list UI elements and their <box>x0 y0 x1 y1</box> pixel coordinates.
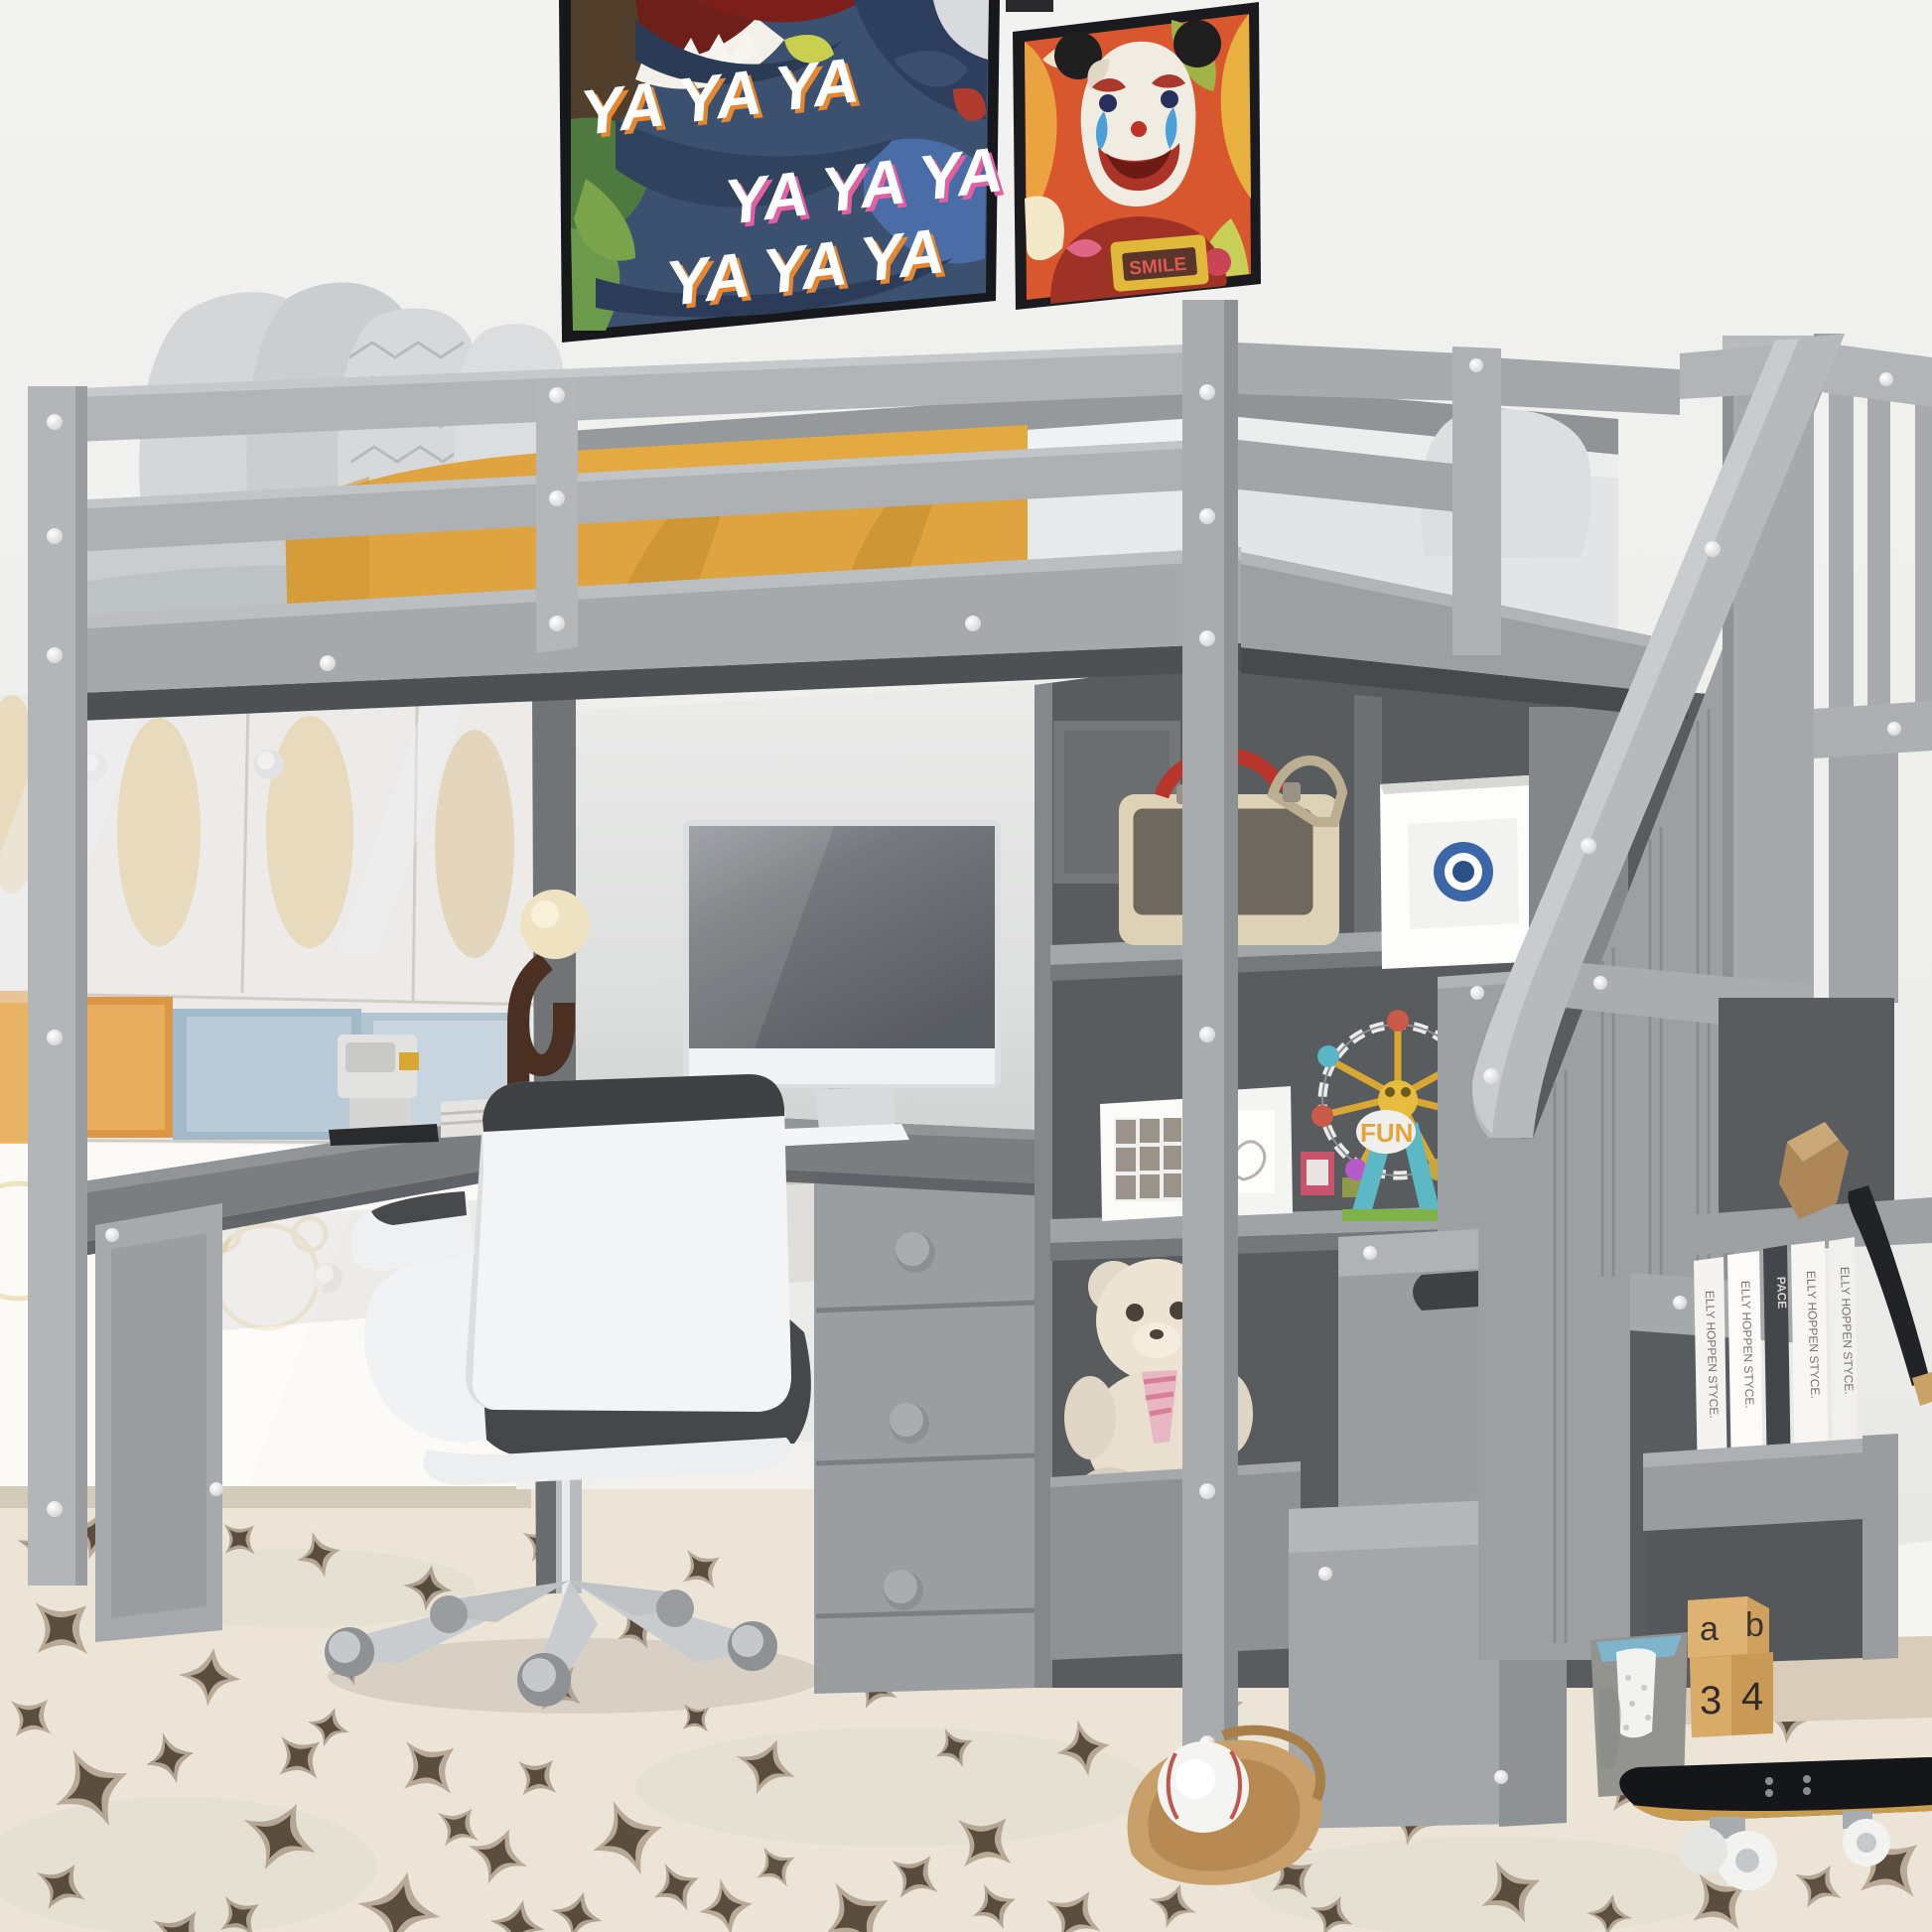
svg-text:3: 3 <box>1700 1679 1722 1723</box>
svg-text:4: 4 <box>1741 1675 1763 1719</box>
svg-text:PACE: PACE <box>1774 1277 1789 1310</box>
svg-text:a: a <box>1700 1610 1719 1648</box>
svg-text:FUN: FUN <box>1360 1118 1413 1148</box>
svg-text:b: b <box>1745 1606 1764 1644</box>
